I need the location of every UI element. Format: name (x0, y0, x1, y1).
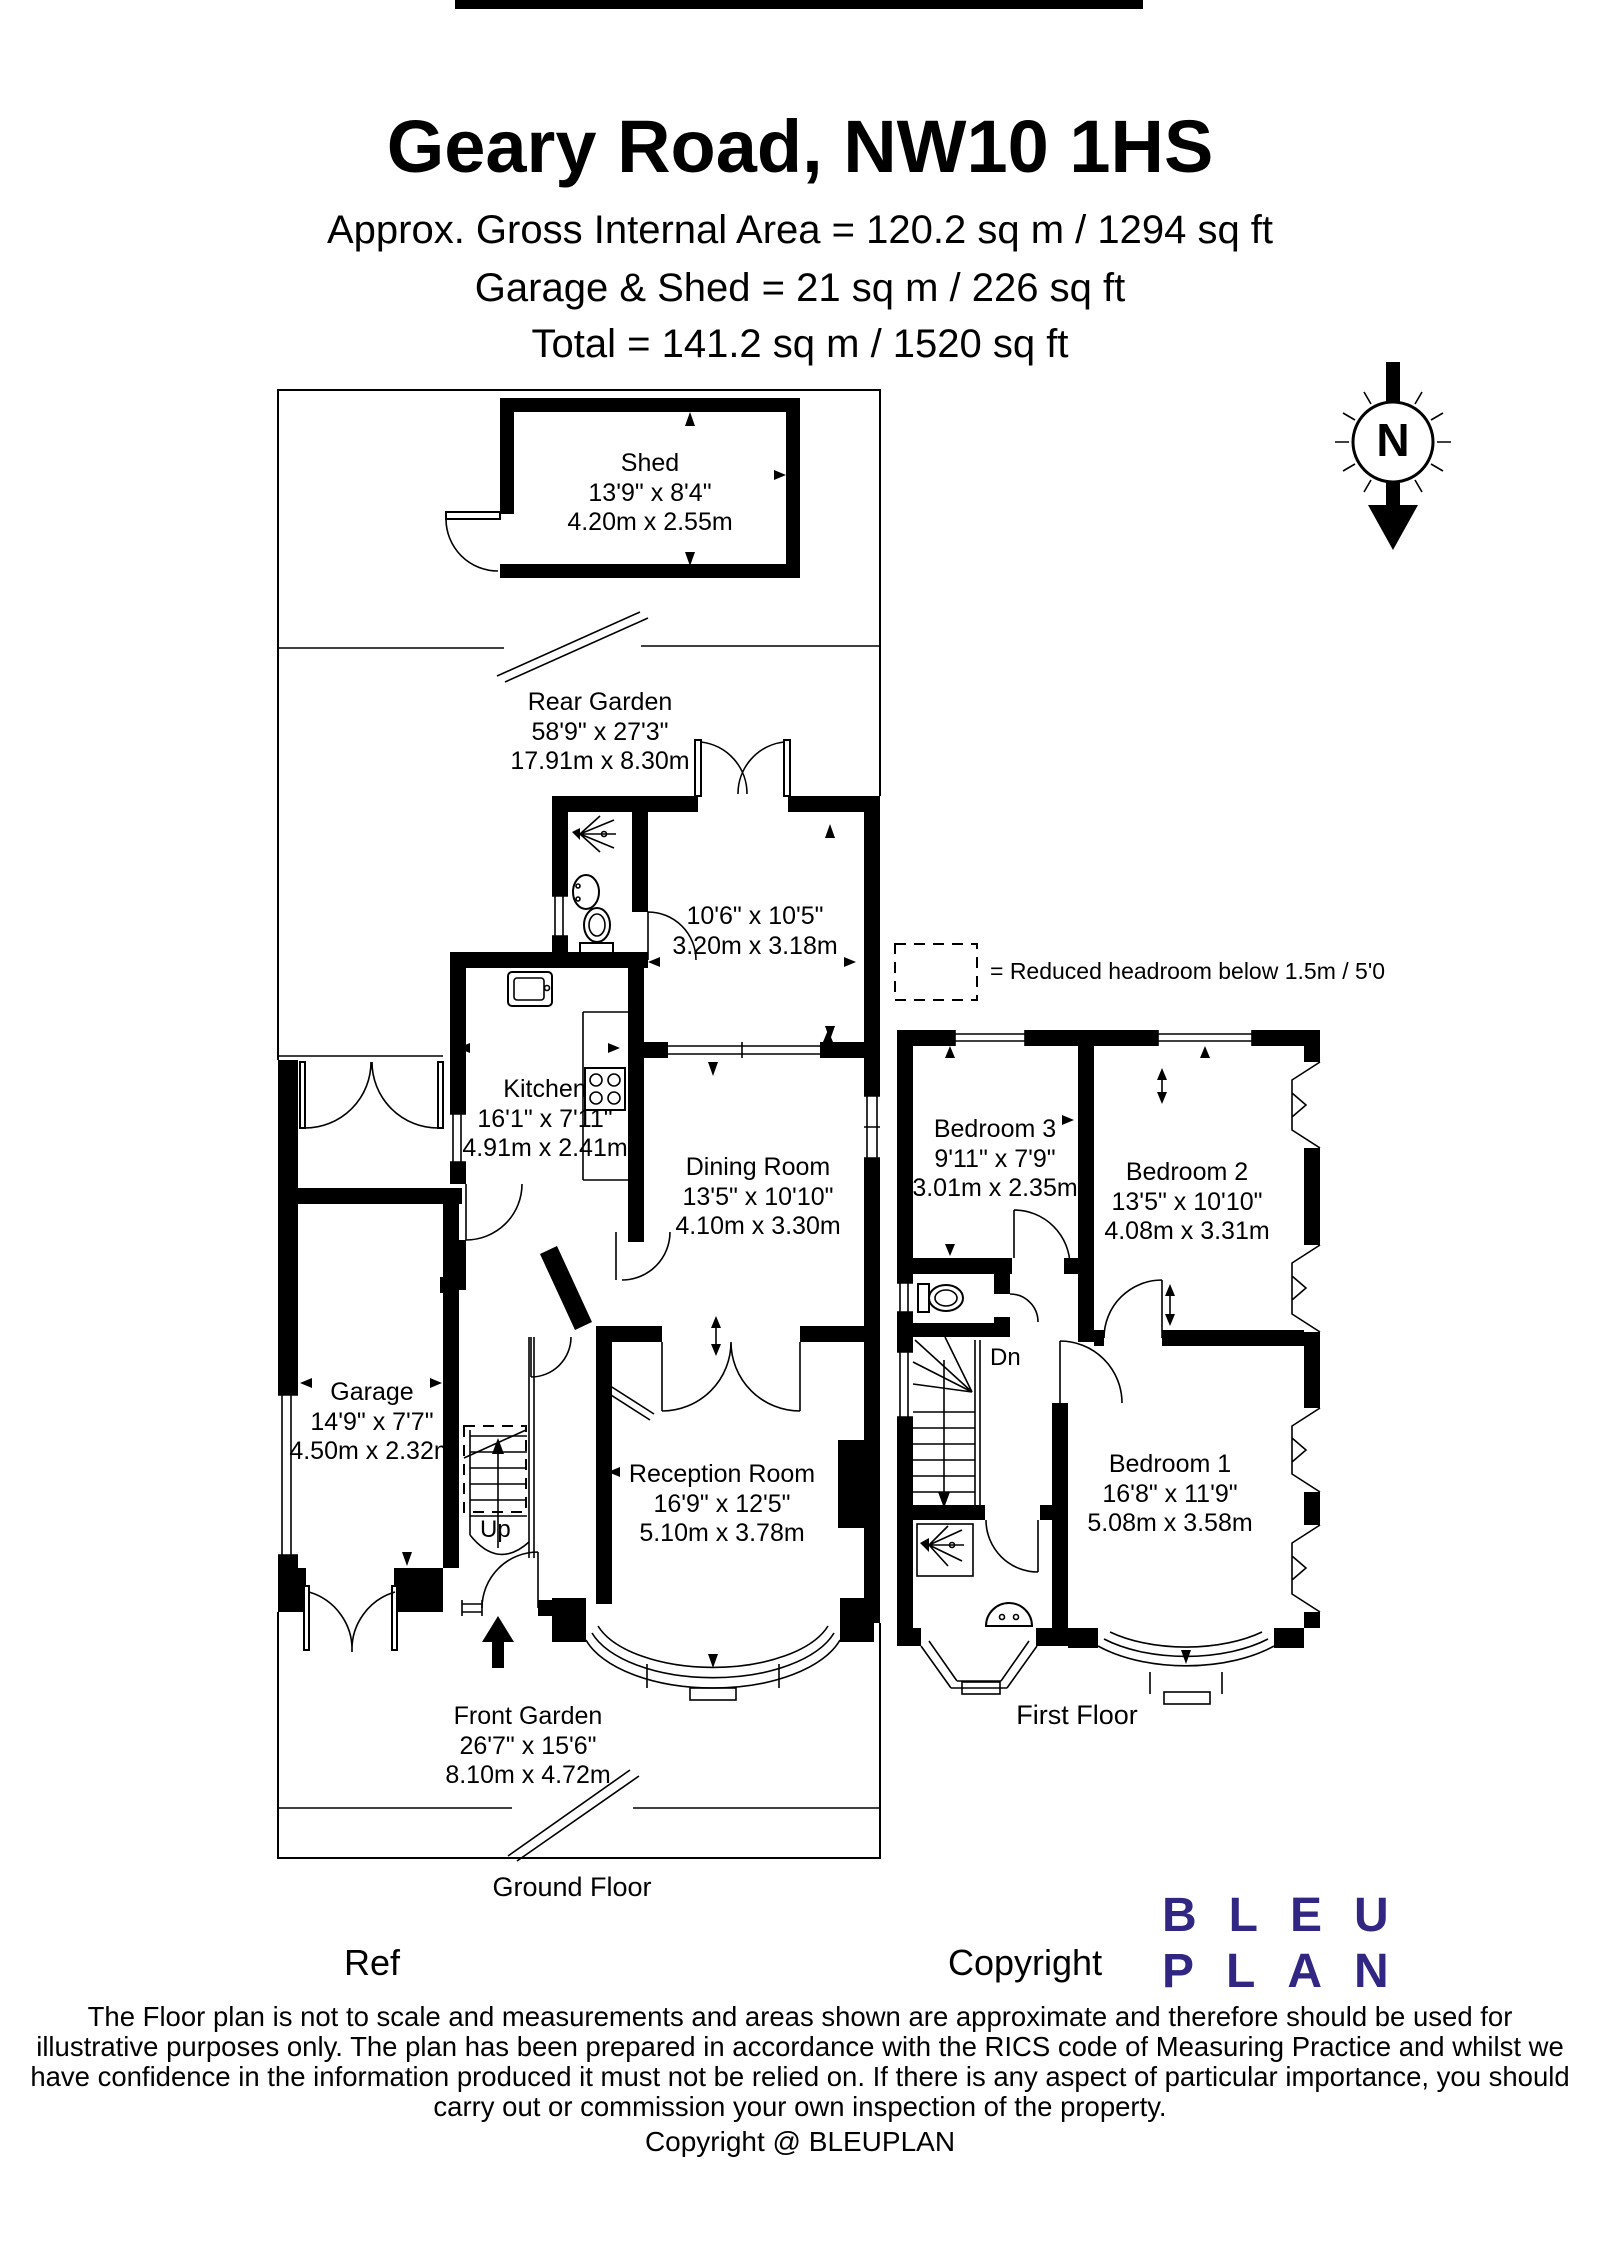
kitchen-label: Kitchen 16'1" x 7'11" 4.91m x 2.41m (462, 1075, 627, 1164)
gate-leaf (438, 1062, 443, 1128)
bedroom2-splayed-window (1292, 1245, 1320, 1332)
room-dim-imperial: 13'5" x 10'10" (675, 1183, 840, 1213)
dining-room-label: Dining Room 13'5" x 10'10" 4.10m x 3.30m (675, 1153, 840, 1242)
reception-double-door-arcs (662, 1342, 800, 1411)
dining-glazed-opening (668, 1042, 820, 1058)
compass-north-label: N (1376, 413, 1409, 467)
shed-door-leaf (446, 512, 500, 519)
room-name: Shed (567, 449, 732, 479)
legend-reduced-headroom-box (895, 944, 977, 1000)
room-dim-metric: 4.91m x 2.41m (462, 1134, 627, 1164)
garage-walls (278, 1056, 462, 1652)
room-dim-metric: 4.10m x 3.30m (675, 1212, 840, 1242)
bedroom1-splayed-window (1292, 1408, 1320, 1492)
entrance-arrow (482, 1616, 514, 1668)
room-dim-imperial: 10'6" x 10'5" (672, 902, 837, 932)
stairs-first (913, 1337, 980, 1520)
room-dim-metric: 3.20m x 3.18m (672, 932, 837, 962)
bedroom3-window (955, 1030, 1025, 1046)
bathroom-ff-door-arc (986, 1520, 1038, 1572)
room-name: Rear Garden (510, 688, 689, 718)
rear-reception-label: 10'6" x 10'5" 3.20m x 3.18m (672, 902, 837, 961)
garage-label: Garage 14'9" x 7'7" 4.50m x 2.32m (289, 1378, 454, 1467)
shed-label: Shed 13'9" x 8'4" 4.20m x 2.55m (567, 449, 732, 538)
room-name: Bedroom 3 (912, 1115, 1077, 1145)
room-name: Front Garden (445, 1702, 610, 1732)
bedroom-1-label: Bedroom 1 16'8" x 11'9" 5.08m x 3.58m (1087, 1450, 1252, 1539)
gate-leaf (300, 1062, 305, 1128)
hall-window (462, 1600, 482, 1616)
ground-floor-label: Ground Floor (492, 1872, 651, 1903)
rear-door-leaf (784, 740, 790, 796)
room-dim-imperial: 13'5" x 10'10" (1104, 1188, 1269, 1218)
kitchen-side-door-arc (466, 1184, 522, 1240)
copyright-note: Copyright @ BLEUPLAN (645, 2126, 955, 2158)
washbasin-ff (986, 1603, 1032, 1626)
room-name: Kitchen (462, 1075, 627, 1105)
front-garden-label: Front Garden 26'7" x 15'6" 8.10m x 4.72m (445, 1702, 610, 1791)
bedroom-2-label: Bedroom 2 13'5" x 10'10" 4.08m x 3.31m (1104, 1158, 1269, 1247)
toilet (580, 908, 613, 953)
bedroom3-door-arc (1014, 1210, 1070, 1266)
room-dim-metric: 17.91m x 8.30m (510, 747, 689, 777)
room-name: Reception Room (629, 1460, 815, 1490)
chimney-breast (838, 1440, 864, 1528)
shower-symbol (572, 816, 616, 852)
garage-door-leaf (304, 1586, 309, 1650)
room-dim-imperial: 9'11" x 7'9" (912, 1145, 1077, 1175)
logo-line-2: PLAN (1162, 1944, 1421, 2000)
room-dim-metric: 4.08m x 3.31m (1104, 1217, 1269, 1247)
rear-double-door-arcs (701, 742, 784, 794)
gate-arcs (305, 1062, 438, 1128)
logo-line-1: BLEU (1162, 1888, 1421, 1944)
room-dim-imperial: 16'9" x 12'5" (629, 1490, 815, 1520)
stairs-up-label: Up (480, 1516, 511, 1544)
room-dim-imperial: 26'7" x 15'6" (445, 1732, 610, 1762)
garage-door-leaf (392, 1586, 397, 1650)
dining-window (864, 1096, 880, 1158)
room-dim-imperial: 58'9" x 27'3" (510, 718, 689, 748)
bedroom2-splayed-window (1292, 1062, 1320, 1148)
first-floor-label: First Floor (1016, 1700, 1138, 1731)
legend-text: = Reduced headroom below 1.5m / 5'0 (990, 958, 1385, 985)
hall-door-arc (531, 1337, 571, 1377)
bedroom1-splayed-window (1292, 1525, 1320, 1612)
washbasin (573, 875, 599, 909)
room-dim-metric: 8.10m x 4.72m (445, 1761, 610, 1791)
room-name: Bedroom 1 (1087, 1450, 1252, 1480)
landing-window (897, 1352, 913, 1417)
room-name: Garage (289, 1378, 454, 1408)
shed-door-arc (446, 519, 498, 571)
disclaimer-text: The Floor plan is not to scale and measu… (26, 2002, 1574, 2122)
bathroom-window (552, 896, 568, 936)
wc-toilet (918, 1284, 963, 1312)
room-dim-metric: 4.20m x 2.55m (567, 508, 732, 538)
angular-bay-window (921, 1641, 1037, 1688)
room-dim-imperial: 16'1" x 7'11" (462, 1105, 627, 1135)
garage-door-arcs (309, 1592, 395, 1652)
room-dim-imperial: 14'9" x 7'7" (289, 1408, 454, 1438)
shower-enclosure (917, 1524, 973, 1576)
bedroom1-door-arc (1060, 1341, 1122, 1403)
stairs-down-label: Dn (990, 1344, 1021, 1372)
reduced-headroom-zone (464, 1426, 526, 1512)
room-dim-imperial: 16'8" x 11'9" (1087, 1480, 1252, 1510)
kitchen-sink (508, 972, 552, 1006)
reception-room-label: Reception Room 16'9" x 12'5" 5.10m x 3.7… (629, 1460, 815, 1549)
room-dim-metric: 3.01m x 2.35m (912, 1174, 1077, 1204)
bedroom-3-label: Bedroom 3 9'11" x 7'9" 3.01m x 2.35m (912, 1115, 1077, 1204)
rear-garden-label: Rear Garden 58'9" x 27'3" 17.91m x 8.30m (510, 688, 689, 777)
rear-door-leaf (695, 740, 701, 796)
room-name: Bedroom 2 (1104, 1158, 1269, 1188)
room-name: Dining Room (675, 1153, 840, 1183)
ref-label: Ref (344, 1942, 400, 1984)
wc-window (897, 1283, 913, 1312)
copyright-label: Copyright (948, 1942, 1102, 1984)
bleuplan-logo: BLEU PLAN (1162, 1888, 1421, 1999)
front-door-arc (482, 1552, 538, 1608)
wc-door-arc (1010, 1294, 1038, 1322)
bedroom2-window (1158, 1030, 1252, 1046)
room-dim-metric: 5.08m x 3.58m (1087, 1509, 1252, 1539)
room-dim-metric: 4.50m x 2.32m (289, 1437, 454, 1467)
room-dim-metric: 5.10m x 3.78m (629, 1519, 815, 1549)
bedroom2-door-arc (1104, 1280, 1162, 1338)
room-dim-imperial: 13'9" x 8'4" (567, 479, 732, 509)
